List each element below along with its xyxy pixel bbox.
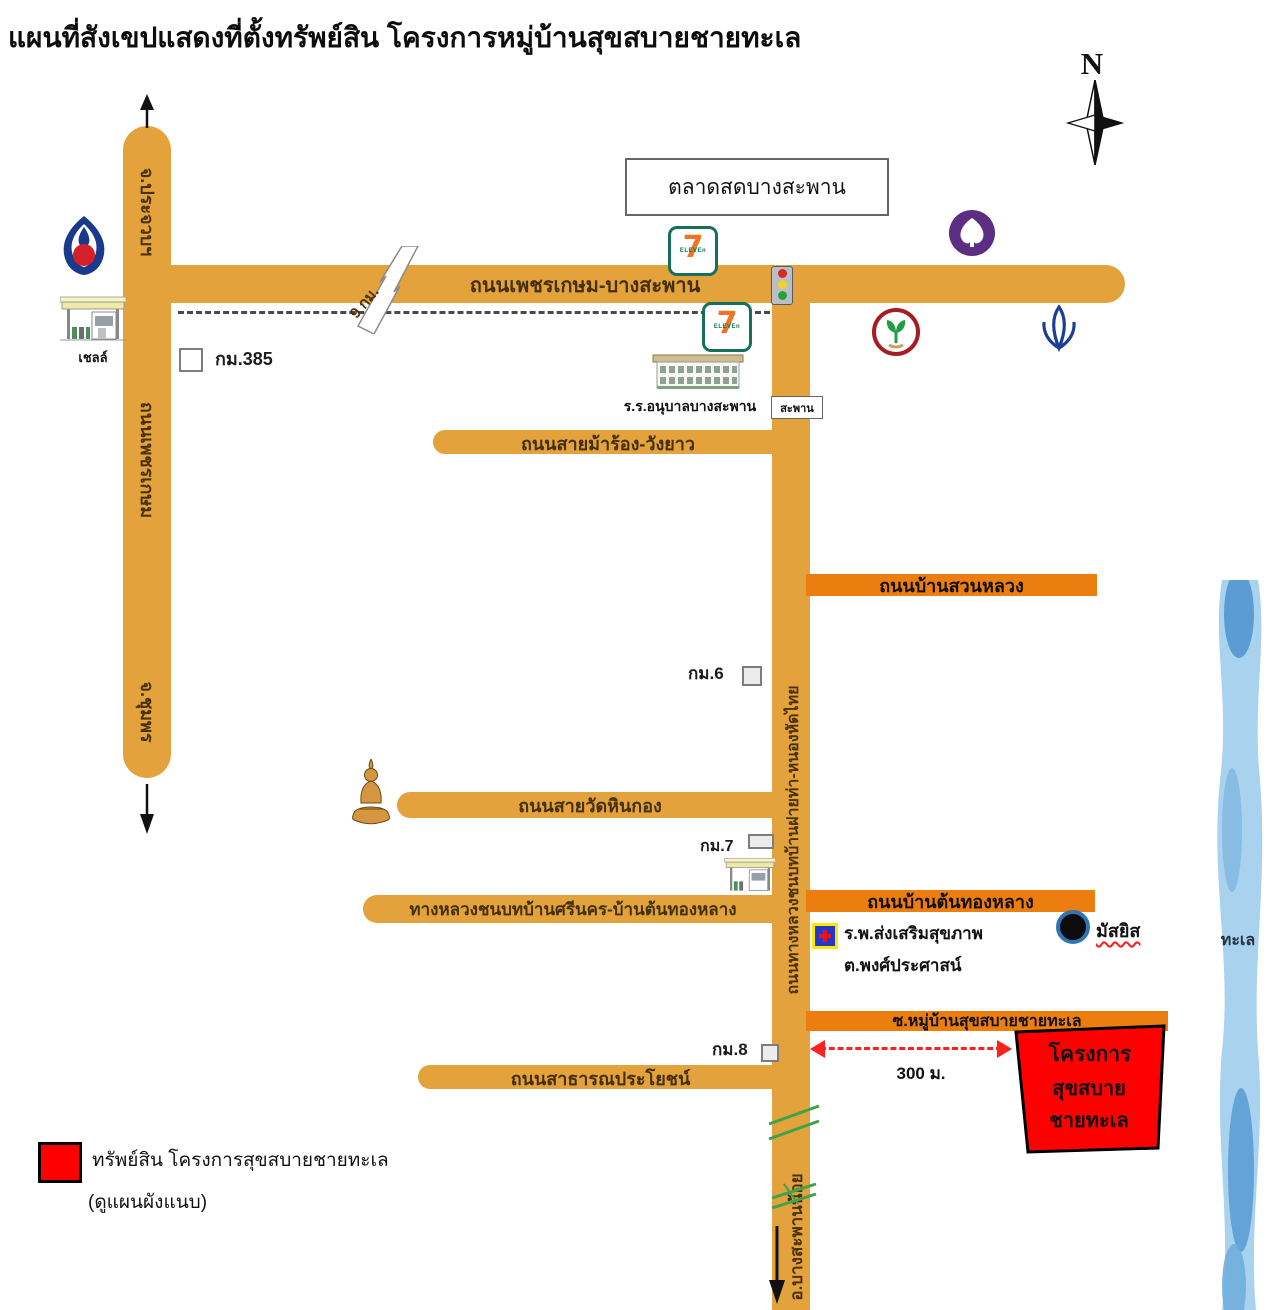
- km385-marker: [179, 348, 203, 372]
- scb-bank-icon: [948, 209, 996, 257]
- wat-hin-kong-label: ถนนสายวัดหินกอง: [397, 794, 783, 818]
- traffic-light-icon: [771, 266, 793, 305]
- ptt-logo-icon: [58, 215, 110, 277]
- south-arrow-icon: [137, 784, 157, 836]
- project-box-line1: โครงการ: [1030, 1038, 1150, 1071]
- arrow-right-head-icon: [997, 1040, 1012, 1058]
- project-box-line2: สุขสบายชายทะเล: [1014, 1072, 1164, 1136]
- km7-label: กม.7: [700, 836, 734, 858]
- road-ban-suan-luang: ถนนบ้านสวนหลวง: [806, 574, 1097, 596]
- distance-label: 300 ม.: [876, 1060, 966, 1087]
- hospital-label-line2: ต.พงศ์ประศาสน์: [844, 954, 961, 978]
- rural-road-label: ถนนทางหลวงชนบทบ้านฝายท่า-หนองหัดไทย: [783, 648, 805, 1032]
- page-title: แผนที่สังเขปแสดงที่ตั้งทรัพย์สิน โครงการ…: [8, 18, 801, 58]
- market-label: ตลาดสดบางสะพาน: [668, 171, 846, 204]
- south-arrow-bottom-icon: [766, 1226, 788, 1306]
- km8-label: กม.8: [712, 1039, 748, 1061]
- km8-marker: [761, 1044, 779, 1062]
- mosque-label: มัสยิส: [1096, 916, 1140, 945]
- compass-north-label: N: [1070, 46, 1114, 82]
- distance-arrow: [810, 1040, 1012, 1058]
- bangkok-bank-icon: [1036, 304, 1082, 356]
- green-crossing-marks: [764, 1098, 822, 1210]
- phetkasem-north-destination-label: จ.ประจวบฯ: [136, 157, 158, 267]
- legend-line2: (ดูแผนผังแนบ): [88, 1190, 207, 1216]
- public-benefit-label: ถนนสาธารณประโยชน์: [418, 1067, 783, 1091]
- phetkasem-road-label: ถนนเพชรเกษม: [136, 395, 158, 525]
- sea-label: ทะเล: [1208, 928, 1268, 953]
- school-building-icon: [652, 350, 744, 396]
- school-label: ร.ร.อนุบาลบางสะพาน: [610, 396, 770, 418]
- shell-station-icon: [60, 294, 126, 346]
- mosque-icon: [1056, 910, 1090, 944]
- dashed-line: [178, 311, 770, 314]
- kasikorn-bank-icon: [871, 307, 921, 357]
- buddha-statue-icon: [344, 759, 398, 827]
- ban-ton-thong-lang-label: ถนนบ้านต้นทองหลาง: [867, 887, 1034, 916]
- shell-station-label: เชลล์: [60, 347, 126, 368]
- seven-eleven-word: ELEVEn: [671, 248, 715, 254]
- seven-eleven-icon: 7 ELEVEn: [668, 226, 718, 276]
- km6-marker: [742, 666, 762, 686]
- legend-swatch: [38, 1142, 82, 1183]
- seven-eleven-icon: 7 ELEVEn: [702, 302, 752, 352]
- market-box: ตลาดสดบางสะพาน: [625, 158, 889, 216]
- legend-line1: ทรัพย์สิน โครงการสุขสบายชายทะเล: [92, 1148, 389, 1174]
- compass-rose-icon: [1060, 80, 1130, 165]
- north-arrow-icon: [137, 94, 157, 128]
- km7-marker: [748, 834, 774, 849]
- ban-suan-luang-label: ถนนบ้านสวนหลวง: [879, 571, 1024, 600]
- hospital-icon: [812, 923, 838, 949]
- gas-station-icon: [724, 856, 776, 896]
- phetkasem-south-destination-label: จ.ชุมพร: [136, 667, 158, 757]
- property-location-map: แผนที่สังเขปแสดงที่ตั้งทรัพย์สิน โครงการ…: [0, 0, 1280, 1310]
- road-ban-ton-thong-lang: ถนนบ้านต้นทองหลาง: [806, 890, 1095, 912]
- bridge-label: สะพาน: [780, 399, 814, 417]
- hospital-label-line1: ร.พ.ส่งเสริมสุขภาพ: [844, 922, 983, 946]
- srinakhon-tonthonglang-label: ทางหลวงชนบทบ้านศรีนคร-บ้านต้นทองหลาง: [363, 898, 783, 922]
- main-road-label: ถนนเพชรเกษม-บางสะพาน: [380, 274, 790, 298]
- km385-label: กม.385: [215, 348, 273, 370]
- marong-wangyao-label: ถนนสายม้าร้อง-วังยาว: [433, 432, 783, 456]
- km6-label: กม.6: [688, 663, 724, 685]
- bridge-box: สะพาน: [771, 396, 823, 419]
